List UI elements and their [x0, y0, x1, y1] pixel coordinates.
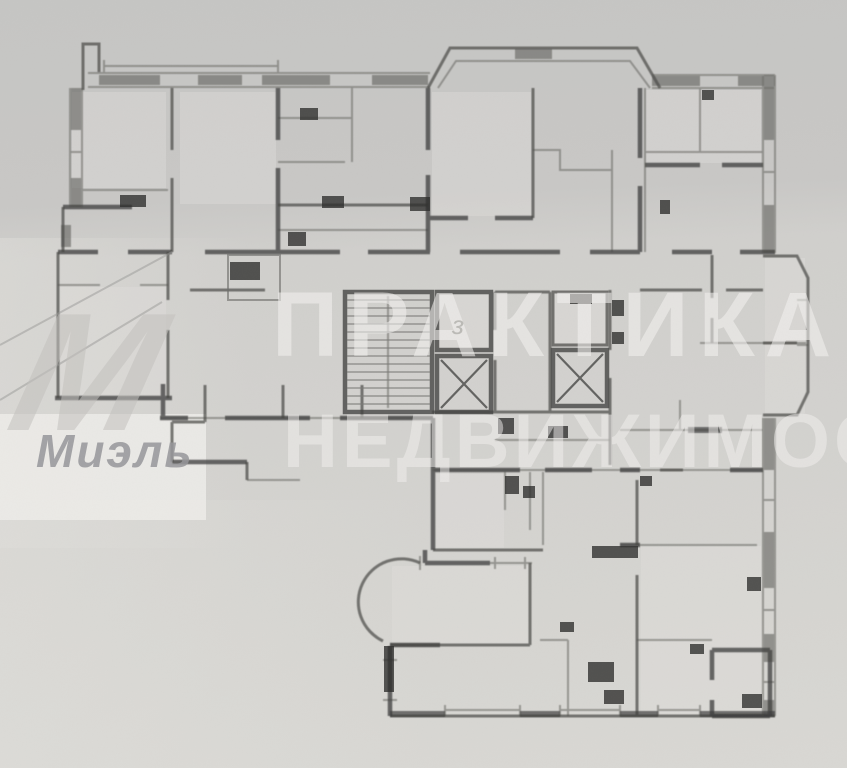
- floor-plan-scan: з: [0, 0, 847, 768]
- floor-plan-drawing: з: [0, 0, 847, 768]
- paper-noise-overlay: [0, 0, 847, 768]
